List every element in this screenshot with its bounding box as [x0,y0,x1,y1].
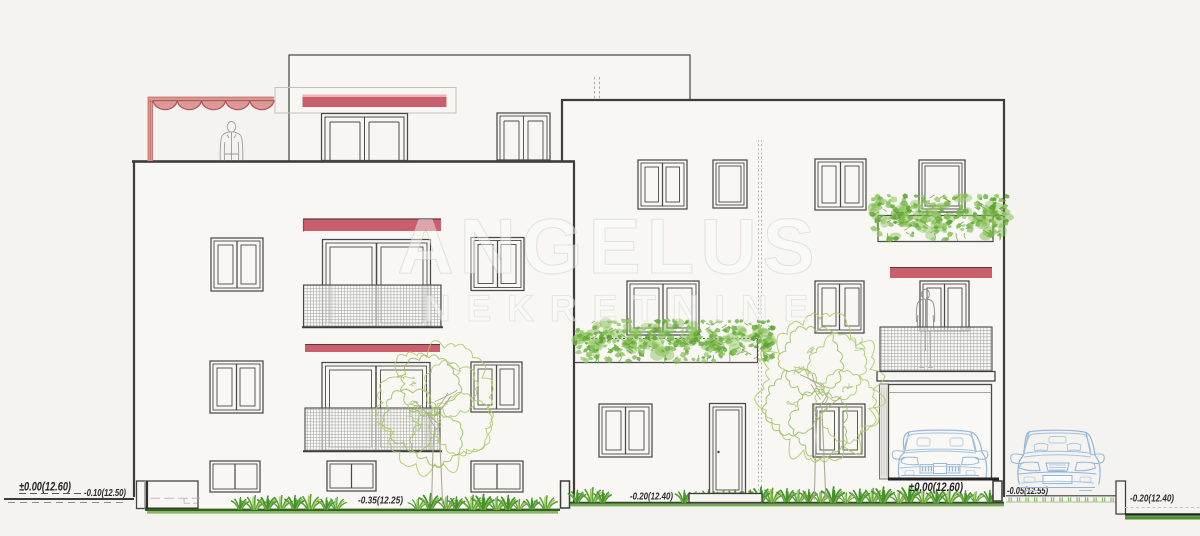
svg-text:±0.00(12.60): ±0.00(12.60) [19,482,71,494]
svg-text:ANGELUS: ANGELUS [397,202,820,290]
svg-text:-0.20(12.40): -0.20(12.40) [630,491,673,503]
svg-text:-0.20(12.40): -0.20(12.40) [1130,493,1174,505]
svg-text:±0.00(12.60): ±0.00(12.60) [909,482,963,494]
svg-text:-0.35(12.25): -0.35(12.25) [358,495,403,507]
svg-text:-0.10(12.50): -0.10(12.50) [84,487,126,499]
svg-text:NEKRETNINE: NEKRETNINE [424,288,825,329]
